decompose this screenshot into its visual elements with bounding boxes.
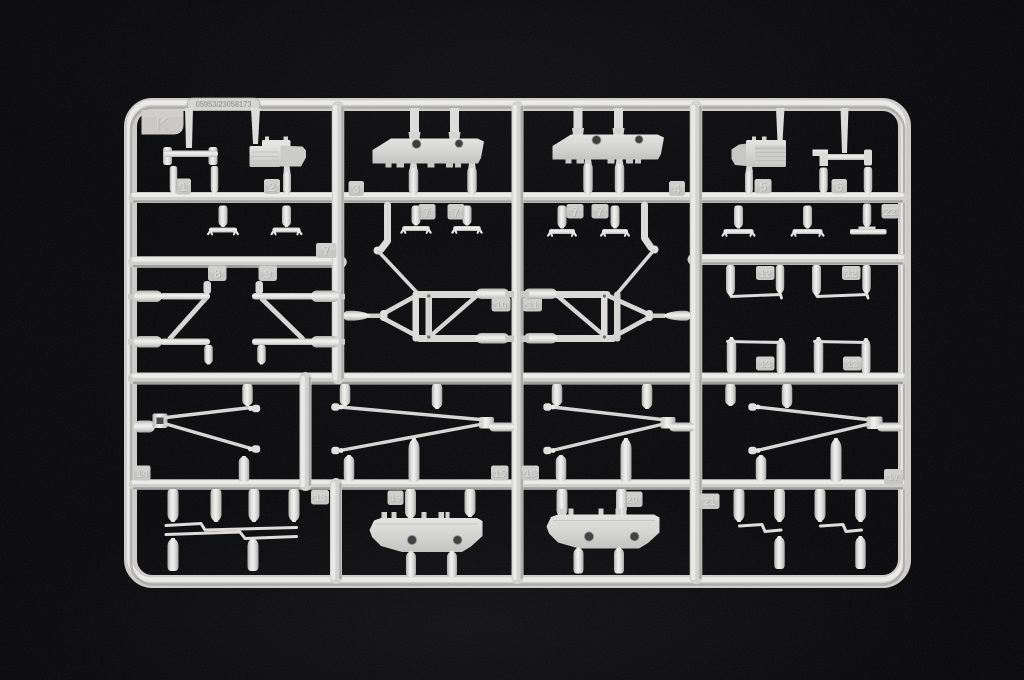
svg-text:3: 3 (353, 182, 360, 196)
svg-text:7: 7 (323, 244, 330, 258)
svg-text:18: 18 (314, 492, 326, 504)
svg-text:7: 7 (597, 205, 604, 219)
svg-text:05953/23058173: 05953/23058173 (196, 100, 253, 109)
svg-text:7: 7 (572, 205, 579, 219)
svg-text:21: 21 (704, 496, 716, 508)
svg-text:11: 11 (527, 299, 538, 311)
svg-text:22: 22 (884, 206, 896, 218)
svg-text:19: 19 (390, 493, 402, 505)
svg-text:10: 10 (495, 299, 507, 311)
svg-text:13: 13 (759, 358, 771, 370)
svg-text:8: 8 (214, 267, 221, 281)
svg-text:1: 1 (180, 180, 187, 194)
svg-text:6: 6 (836, 180, 843, 194)
svg-text:7: 7 (424, 205, 431, 219)
svg-text:17: 17 (888, 472, 900, 484)
svg-text:12: 12 (759, 268, 771, 280)
svg-text:K: K (157, 115, 170, 134)
svg-text:15: 15 (494, 468, 506, 480)
svg-text:9: 9 (264, 267, 271, 281)
svg-text:14: 14 (136, 468, 148, 480)
svg-text:13: 13 (846, 358, 858, 370)
svg-text:12: 12 (845, 268, 857, 280)
svg-text:7: 7 (453, 205, 460, 219)
svg-text:16: 16 (524, 468, 536, 480)
svg-text:5: 5 (760, 180, 767, 194)
svg-text:2: 2 (269, 180, 276, 194)
svg-text:4: 4 (674, 182, 681, 196)
svg-text:20: 20 (626, 494, 638, 506)
